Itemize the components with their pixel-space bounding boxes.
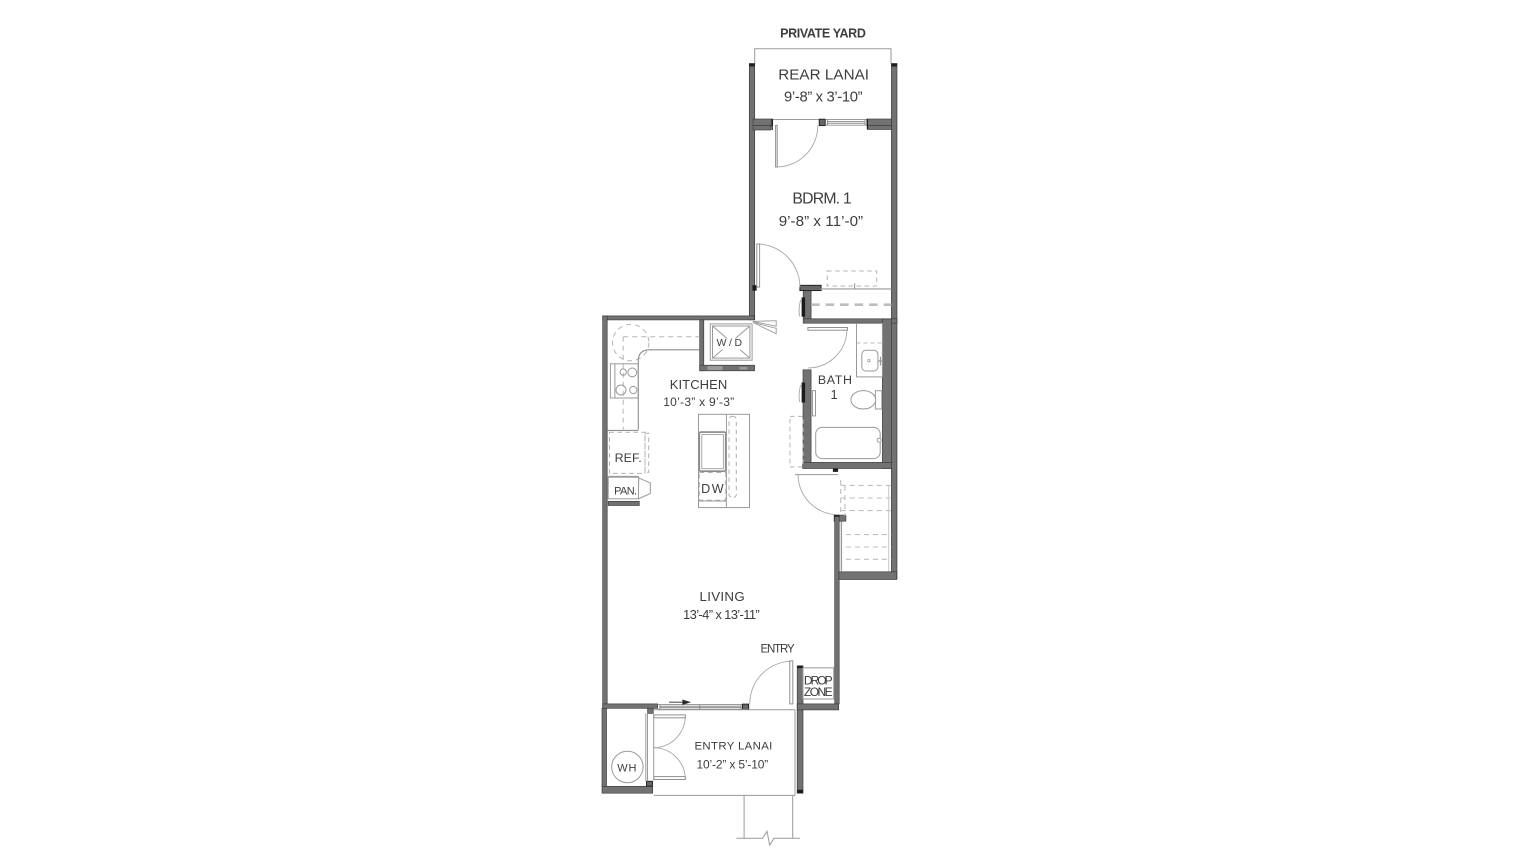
svg-text:13’-4” x 13’-11”: 13’-4” x 13’-11” — [683, 607, 760, 622]
svg-text:10’-3” x 9’-3”: 10’-3” x 9’-3” — [663, 395, 734, 409]
svg-text:KITCHEN: KITCHEN — [670, 377, 728, 392]
svg-text:REF.: REF. — [615, 451, 642, 465]
svg-text:ENTRY LANAI: ENTRY LANAI — [694, 741, 772, 753]
svg-text:REAR LANAI: REAR LANAI — [778, 67, 869, 84]
svg-text:10’-2” x 5’-10”: 10’-2” x 5’-10” — [697, 758, 769, 772]
svg-text:ENTRY: ENTRY — [761, 644, 795, 656]
svg-text:ZONE: ZONE — [804, 685, 833, 699]
svg-text:PAN.: PAN. — [614, 486, 637, 498]
svg-text:WH: WH — [617, 763, 636, 775]
svg-text:1: 1 — [831, 387, 838, 402]
svg-text:PRIVATE YARD: PRIVATE YARD — [780, 27, 866, 41]
svg-text:DW: DW — [701, 482, 724, 496]
svg-text:BDRM. 1: BDRM. 1 — [792, 190, 852, 207]
svg-text:9’-8” x 3’-10”: 9’-8” x 3’-10” — [784, 89, 863, 105]
svg-text:BATH: BATH — [818, 373, 852, 387]
svg-text:W/D: W/D — [717, 338, 742, 349]
svg-text:LIVING: LIVING — [700, 589, 745, 604]
svg-text:9’-8” x 11’-0”: 9’-8” x 11’-0” — [779, 213, 863, 230]
